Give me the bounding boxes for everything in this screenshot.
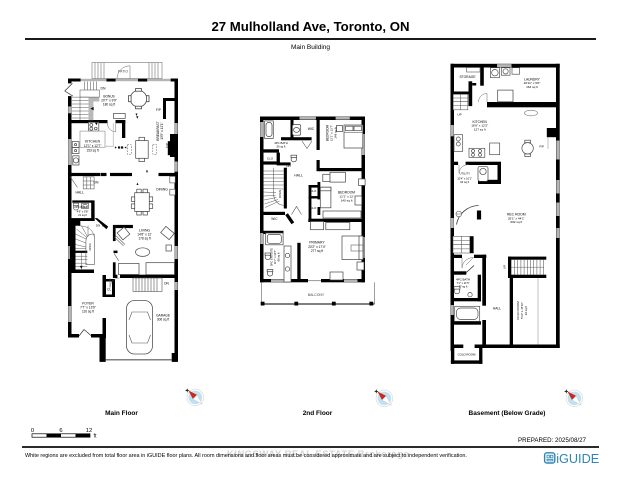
svg-text:UP: UP — [457, 113, 461, 117]
svg-text:HALL: HALL — [102, 225, 109, 228]
svg-text:HALL: HALL — [75, 191, 84, 195]
svg-text:4PC BATH: 4PC BATH — [274, 141, 287, 145]
svg-text:153 sq ft: 153 sq ft — [86, 148, 98, 152]
svg-text:DINING: DINING — [156, 187, 168, 191]
svg-text:CLO: CLO — [267, 157, 274, 161]
svg-text:163 sq ft: 163 sq ft — [526, 85, 538, 89]
svg-text:7'1" x 11'5": 7'1" x 11'5" — [456, 281, 469, 285]
svg-text:COLD ROOM: COLD ROOM — [458, 353, 476, 357]
svg-text:68 sq ft: 68 sq ft — [277, 252, 281, 261]
svg-text:77 sq ft: 77 sq ft — [459, 284, 468, 288]
svg-text:DN: DN — [100, 87, 105, 91]
svg-text:DN: DN — [164, 281, 169, 285]
svg-text:6: 6 — [59, 428, 62, 434]
svg-text:12: 12 — [86, 428, 92, 434]
svg-text:12'1" x 12'7": 12'1" x 12'7" — [83, 144, 100, 148]
svg-text:DN: DN — [286, 164, 290, 168]
svg-text:5PC ENSUITE: 5PC ENSUITE — [270, 248, 274, 266]
svg-text:306 sq ft: 306 sq ft — [156, 318, 168, 322]
svg-text:21 sq ft: 21 sq ft — [78, 213, 87, 217]
svg-text:92 sq ft: 92 sq ft — [524, 306, 528, 315]
svg-text:HALL: HALL — [493, 307, 501, 311]
svg-text:4'6" x 5'8": 4'6" x 5'8" — [76, 210, 88, 214]
svg-text:180 sq ft: 180 sq ft — [102, 103, 114, 107]
svg-text:0: 0 — [31, 428, 34, 434]
svg-text:OPEN: OPEN — [87, 243, 91, 250]
svg-text:WIC: WIC — [308, 127, 315, 131]
svg-text:F/P: F/P — [164, 143, 168, 148]
svg-text:PATIO: PATIO — [117, 70, 127, 74]
svg-text:277 sq ft: 277 sq ft — [311, 249, 323, 253]
svg-text:178 sq ft: 178 sq ft — [138, 237, 150, 241]
svg-text:140 sq ft: 140 sq ft — [341, 199, 353, 203]
svg-text:4PC BATH: 4PC BATH — [456, 277, 470, 281]
svg-text:CLO: CLO — [310, 206, 317, 210]
svg-text:OPEN: OPEN — [278, 190, 282, 198]
svg-text:F/P: F/P — [539, 145, 544, 149]
svg-text:UP: UP — [77, 271, 81, 274]
svg-text:F/P: F/P — [156, 108, 161, 112]
svg-text:iGUIDE: iGUIDE — [556, 452, 599, 466]
svg-text:WH: WH — [481, 182, 485, 184]
svg-text:STORAGE: STORAGE — [459, 75, 476, 79]
svg-text:HALL: HALL — [294, 174, 303, 178]
svg-text:13'5" x 12'1": 13'5" x 12'1" — [159, 122, 163, 139]
svg-text:UTILITY: UTILITY — [459, 172, 470, 176]
svg-text:UP: UP — [503, 265, 507, 269]
svg-text:KITCHEN: KITCHEN — [85, 140, 100, 144]
svg-text:CLO: CLO — [310, 189, 317, 193]
svg-text:148 sq ft: 148 sq ft — [334, 127, 338, 139]
svg-text:56 sq ft: 56 sq ft — [277, 144, 286, 148]
svg-text:2PC BATH: 2PC BATH — [74, 205, 87, 209]
svg-text:CL: CL — [107, 287, 111, 291]
svg-text:11'7" x 10'7": 11'7" x 10'7" — [273, 250, 277, 265]
svg-text:BALCONY: BALCONY — [308, 293, 325, 297]
svg-text:94 sq ft: 94 sq ft — [460, 180, 469, 184]
svg-text:DN: DN — [93, 180, 98, 184]
svg-text:WIC: WIC — [271, 217, 278, 221]
svg-text:127 sq ft: 127 sq ft — [474, 127, 486, 131]
svg-text:116 sq ft: 116 sq ft — [82, 310, 94, 314]
svg-text:DN: DN — [95, 224, 99, 228]
svg-text:692 sq ft: 692 sq ft — [510, 220, 522, 224]
svg-text:ft: ft — [94, 434, 97, 440]
svg-text:10'4" x 10'1": 10'4" x 10'1" — [457, 177, 472, 181]
